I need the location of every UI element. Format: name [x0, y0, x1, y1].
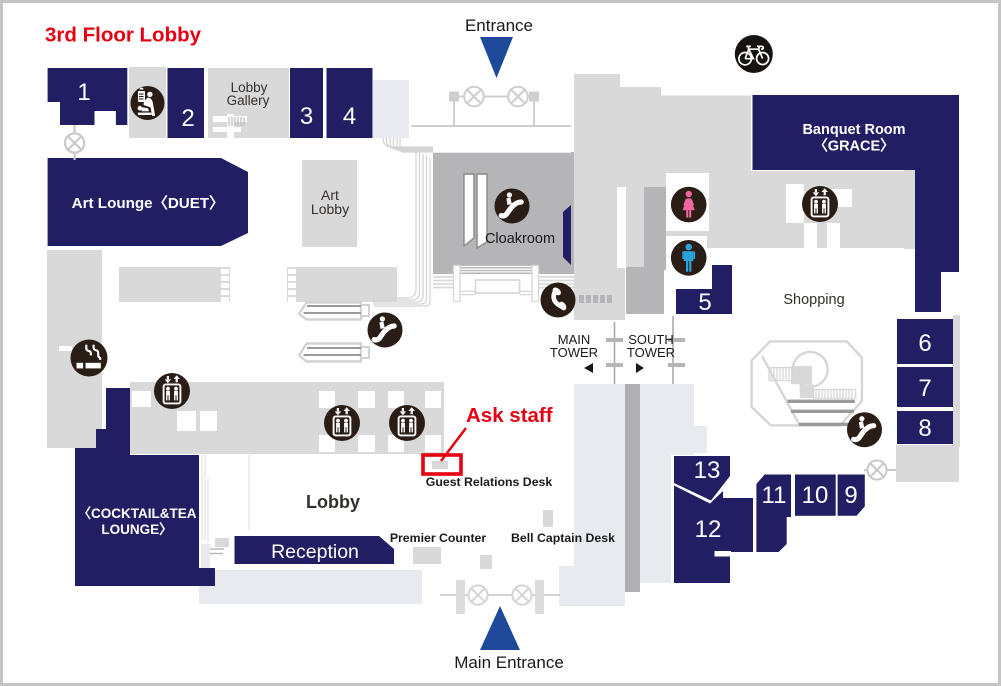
svg-text:Bell Captain Desk: Bell Captain Desk: [511, 531, 615, 545]
svg-text:〈GRACE〉: 〈GRACE〉: [813, 138, 894, 155]
svg-text:11: 11: [762, 482, 787, 509]
svg-text:4: 4: [343, 103, 356, 130]
svg-text:1: 1: [77, 79, 90, 106]
svg-text:Gallery: Gallery: [227, 93, 270, 108]
svg-text:8: 8: [918, 415, 931, 442]
svg-text:Lobby: Lobby: [306, 492, 360, 512]
svg-text:〈COCKTAIL&TEA: 〈COCKTAIL&TEA: [78, 506, 197, 521]
svg-text:TOWER: TOWER: [550, 345, 598, 360]
svg-text:13: 13: [694, 457, 721, 484]
svg-text:Guest Relations Desk: Guest Relations Desk: [426, 475, 553, 489]
svg-text:5: 5: [698, 289, 711, 316]
svg-text:Lobby: Lobby: [311, 201, 349, 217]
svg-text:Entrance: Entrance: [465, 16, 533, 35]
svg-text:12: 12: [695, 516, 722, 543]
svg-text:Reception: Reception: [271, 541, 359, 563]
svg-text:Cloakroom: Cloakroom: [485, 231, 555, 247]
svg-text:10: 10: [802, 482, 829, 509]
svg-text:Main Entrance: Main Entrance: [454, 653, 564, 672]
svg-text:3rd Floor Lobby: 3rd Floor Lobby: [45, 24, 202, 47]
svg-text:Banquet Room: Banquet Room: [802, 122, 905, 138]
svg-text:6: 6: [918, 330, 931, 357]
svg-text:7: 7: [918, 375, 931, 402]
svg-text:2: 2: [181, 105, 194, 132]
svg-text:Ask staff: Ask staff: [466, 404, 553, 427]
svg-text:Shopping: Shopping: [783, 292, 844, 308]
svg-text:9: 9: [844, 482, 857, 509]
svg-text:Art Lounge〈DUET〉: Art Lounge〈DUET〉: [72, 194, 225, 212]
svg-text:LOUNGE〉: LOUNGE〉: [101, 522, 172, 537]
svg-text:3: 3: [300, 103, 313, 130]
svg-text:TOWER: TOWER: [627, 345, 675, 360]
svg-text:Premier Counter: Premier Counter: [390, 531, 487, 545]
